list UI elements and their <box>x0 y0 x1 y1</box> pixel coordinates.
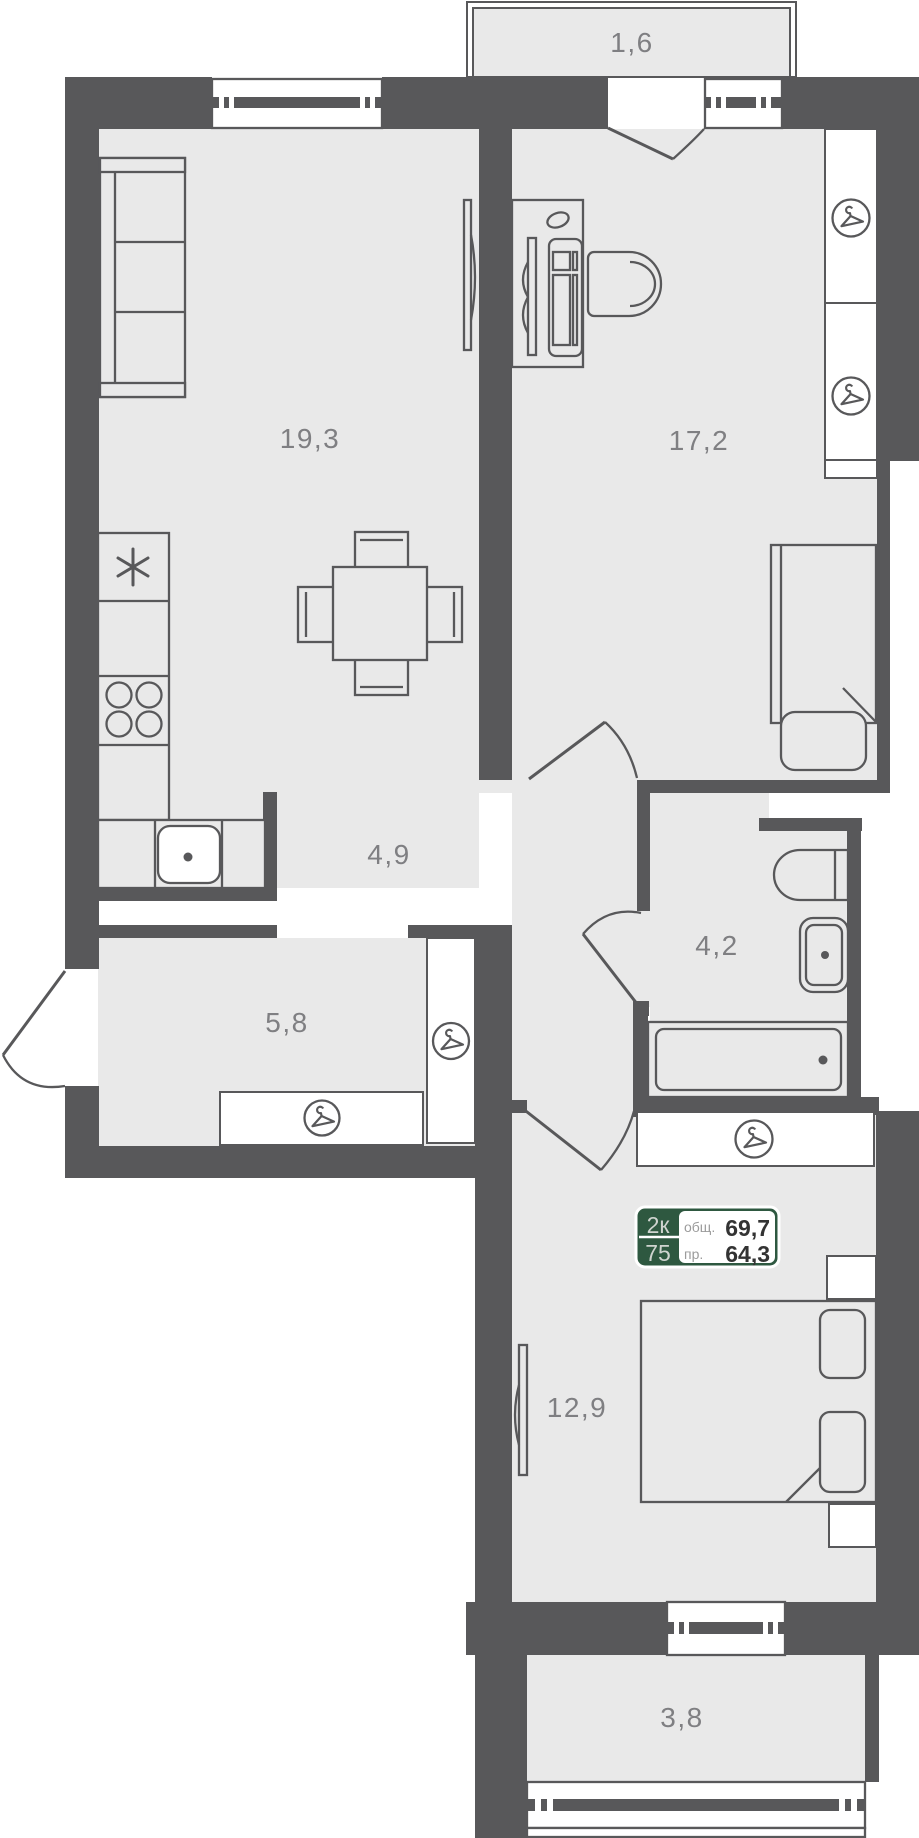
door-entrance <box>3 971 65 1087</box>
desk-chair <box>588 252 661 316</box>
hanger-icon <box>833 378 870 415</box>
bed-bedroom-right <box>771 545 876 770</box>
room-label-entry-hall: 5,8 <box>265 1007 308 1038</box>
bathtub-icon <box>648 1022 848 1097</box>
room-label-hallway: 4,9 <box>367 839 410 870</box>
nightstand-lower <box>829 1504 876 1547</box>
floor-plan-svg: 1,6 19,3 17,2 4,9 4,2 5,8 12,9 3,8 2к 75… <box>0 0 919 1838</box>
badge-total-area-label: общ. <box>684 1219 715 1235</box>
room-label-bedroom-right: 17,2 <box>669 425 730 456</box>
hanger-icon <box>433 1023 469 1059</box>
badge-number: 75 <box>645 1240 671 1266</box>
badge-living-area-value: 64,3 <box>725 1241 770 1267</box>
wardrobe-bedroom-right <box>825 129 877 478</box>
nightstand-upper <box>827 1256 876 1299</box>
floor-plan-page: 1,6 19,3 17,2 4,9 4,2 5,8 12,9 3,8 2к 75… <box>0 0 919 1838</box>
bathroom-sink-icon <box>800 918 848 992</box>
room-label-kitchen-living: 19,3 <box>280 423 341 454</box>
apartment-info-badge: 2к 75 общ. 69,7 пр. 64,3 <box>636 1207 779 1267</box>
room-label-bedroom-lower: 12,9 <box>547 1392 608 1423</box>
kitchen-sink-icon <box>158 826 220 883</box>
bed-bedroom-lower <box>641 1301 876 1502</box>
badge-living-area-label: пр. <box>684 1246 703 1262</box>
hanger-icon <box>305 1101 340 1136</box>
window-balcony-block-icon <box>705 79 782 128</box>
sofa <box>100 158 185 397</box>
toilet-icon <box>774 850 848 900</box>
room-label-balcony-top: 1,6 <box>610 27 653 58</box>
window-bedroom-lower-icon <box>667 1602 785 1655</box>
badge-total-area-value: 69,7 <box>725 1215 770 1241</box>
floor-corridor <box>512 793 637 1112</box>
hanger-icon <box>833 200 870 237</box>
hanger-icon <box>736 1121 773 1158</box>
window-balcony-glazing-icon <box>527 1782 865 1837</box>
desk <box>512 200 583 367</box>
room-label-bathroom: 4,2 <box>695 930 738 961</box>
badge-rooms-count: 2к <box>647 1212 671 1238</box>
room-label-balcony-bottom: 3,8 <box>660 1702 703 1733</box>
window-living-icon <box>212 79 382 128</box>
